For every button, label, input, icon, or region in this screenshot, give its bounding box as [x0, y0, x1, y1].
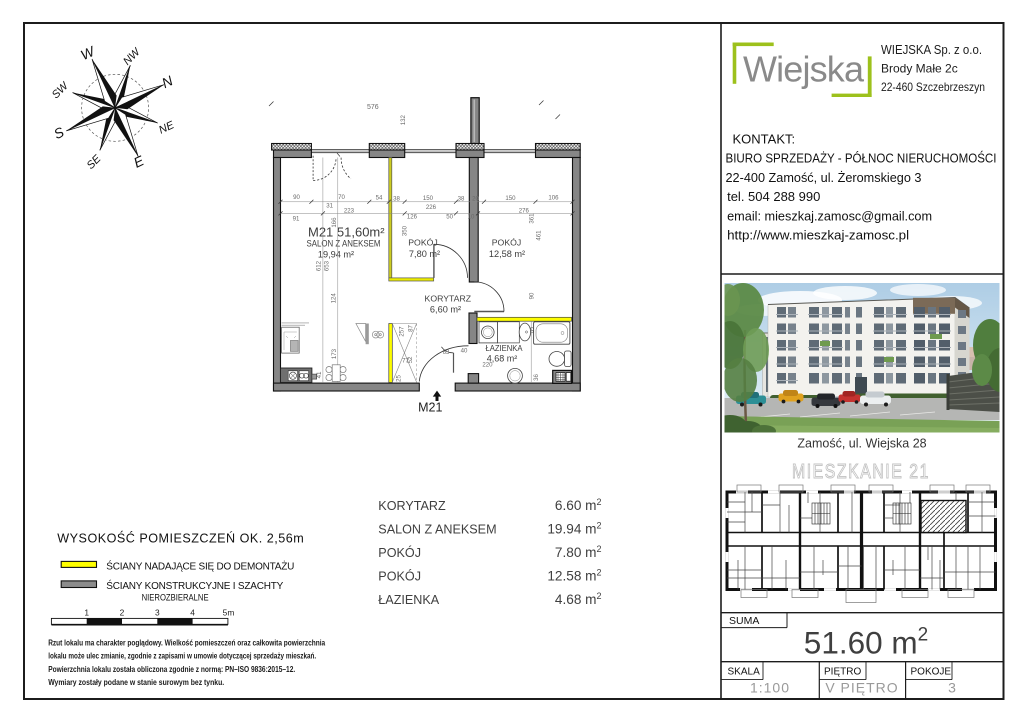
- svg-text:19,94 m²: 19,94 m²: [318, 250, 354, 260]
- svg-text:Brody Małe 2c: Brody Małe 2c: [881, 62, 958, 76]
- svg-text:461: 461: [536, 230, 543, 241]
- svg-text:4: 4: [190, 608, 195, 618]
- svg-text:166: 166: [331, 217, 338, 228]
- svg-text:12,58 m²: 12,58 m²: [489, 249, 525, 259]
- svg-text:54: 54: [376, 195, 383, 202]
- svg-text:ŁAZIENKA: ŁAZIENKA: [378, 593, 439, 607]
- svg-text:36: 36: [533, 374, 540, 381]
- svg-text:150: 150: [505, 195, 516, 202]
- svg-text:63: 63: [443, 349, 450, 356]
- svg-text:38: 38: [393, 196, 400, 203]
- svg-text:90: 90: [529, 292, 536, 299]
- svg-text:Powierzchnia lokalu została ob: Powierzchnia lokalu została obliczona zg…: [48, 664, 295, 674]
- svg-text:361: 361: [529, 213, 536, 224]
- svg-text:POKÓJ: POKÓJ: [492, 238, 521, 248]
- svg-text:NW: NW: [121, 45, 144, 68]
- svg-text:3: 3: [948, 680, 956, 696]
- svg-text:2: 2: [120, 608, 125, 618]
- svg-text:50: 50: [446, 214, 453, 221]
- svg-text:12.58 m2: 12.58 m2: [547, 568, 601, 584]
- svg-text:POKÓJ: POKÓJ: [378, 545, 421, 560]
- svg-text:4.68 m2: 4.68 m2: [555, 591, 602, 607]
- svg-text:SUMA: SUMA: [729, 615, 759, 627]
- svg-text:22-460 Szczebrzeszyn: 22-460 Szczebrzeszyn: [881, 80, 985, 94]
- svg-text:POKOJE: POKOJE: [911, 667, 952, 678]
- svg-text:220: 220: [482, 362, 493, 369]
- svg-text:1:100: 1:100: [750, 680, 790, 696]
- svg-text:31: 31: [326, 203, 333, 210]
- svg-text:E: E: [131, 152, 147, 171]
- svg-text:25: 25: [396, 375, 403, 382]
- svg-text:S: S: [51, 123, 67, 142]
- svg-text:257: 257: [399, 326, 406, 337]
- svg-text:M21 51,60m²: M21 51,60m²: [308, 225, 385, 240]
- svg-text:7,80 m²: 7,80 m²: [409, 249, 440, 259]
- svg-text:653: 653: [324, 260, 331, 271]
- svg-text:19.94 m2: 19.94 m2: [547, 521, 601, 537]
- svg-text:126: 126: [407, 214, 418, 221]
- svg-text:Rzut lokalu ma charakter poglą: Rzut lokalu ma charakter poglądowy. Wiel…: [48, 638, 325, 648]
- svg-text:http://www.mieszkaj-zamosc.pl: http://www.mieszkaj-zamosc.pl: [727, 228, 909, 243]
- svg-text:350: 350: [402, 225, 409, 236]
- svg-text:576: 576: [367, 104, 379, 111]
- svg-text:SALON Z ANEKSEM: SALON Z ANEKSEM: [378, 523, 496, 537]
- svg-text:612: 612: [315, 260, 322, 271]
- svg-text:70: 70: [338, 194, 345, 201]
- svg-text:223: 223: [344, 208, 355, 215]
- svg-text:SW: SW: [50, 79, 72, 101]
- svg-text:KORYTARZ: KORYTARZ: [425, 294, 472, 304]
- svg-text:PIĘTRO: PIĘTRO: [824, 667, 861, 678]
- svg-text:POKÓJ: POKÓJ: [378, 569, 421, 584]
- svg-text:173: 173: [331, 348, 338, 359]
- svg-text:tel. 504 288 990: tel. 504 288 990: [727, 189, 820, 204]
- svg-text:91: 91: [293, 216, 300, 223]
- svg-text:132: 132: [400, 115, 407, 126]
- svg-text:41: 41: [316, 371, 323, 378]
- svg-text:5m: 5m: [223, 608, 235, 618]
- svg-text:10: 10: [468, 214, 475, 221]
- svg-text:1: 1: [84, 608, 89, 618]
- svg-text:BIURO SPRZEDAŻY - PÓŁNOC NIERU: BIURO SPRZEDAŻY - PÓŁNOC NIERUCHOMOŚCI: [726, 151, 997, 166]
- svg-text:6.60 m2: 6.60 m2: [555, 497, 602, 513]
- svg-text:N: N: [159, 72, 176, 91]
- svg-text:V PIĘTRO: V PIĘTRO: [825, 680, 898, 696]
- svg-text:106: 106: [548, 195, 559, 202]
- svg-text:NE: NE: [157, 119, 177, 137]
- svg-text:124: 124: [331, 293, 338, 304]
- svg-text:90: 90: [293, 194, 300, 201]
- svg-text:20: 20: [472, 196, 479, 203]
- svg-text:WYSOKOŚĆ POMIESZCZEŃ OK. 2,56m: WYSOKOŚĆ POMIESZCZEŃ OK. 2,56m: [57, 531, 304, 546]
- svg-text:51.60 m2: 51.60 m2: [804, 625, 928, 661]
- svg-text:W: W: [78, 42, 98, 63]
- svg-text:226: 226: [426, 204, 437, 211]
- svg-text:6,60 m²: 6,60 m²: [430, 305, 461, 315]
- svg-text:MIESZKANIE 21: MIESZKANIE 21: [792, 460, 930, 483]
- svg-text:Wymiary zostały podane w stani: Wymiary zostały podane w stanie surowym …: [48, 677, 224, 687]
- svg-text:lokalu może ulec zmianie, zgod: lokalu może ulec zmianie, zgodnie z zapi…: [48, 651, 316, 661]
- svg-text:38: 38: [458, 196, 465, 203]
- svg-text:22-400 Zamość, ul. Żeromskiego: 22-400 Zamość, ul. Żeromskiego 3: [726, 170, 922, 185]
- svg-text:M21: M21: [418, 401, 442, 415]
- svg-text:ŚCIANY NADAJĄCE SIĘ DO DEMONTA: ŚCIANY NADAJĄCE SIĘ DO DEMONTAŻU: [106, 560, 294, 573]
- svg-text:ŚCIANY KONSTRUKCYJNE I SZACHTY: ŚCIANY KONSTRUKCYJNE I SZACHTY: [106, 579, 283, 592]
- svg-text:SKALA: SKALA: [728, 667, 761, 678]
- svg-text:KORYTARZ: KORYTARZ: [378, 499, 446, 513]
- svg-text:150: 150: [423, 195, 434, 202]
- svg-text:POKÓJ: POKÓJ: [408, 238, 437, 248]
- svg-text:Zamość, ul. Wiejska 28: Zamość, ul. Wiejska 28: [797, 437, 926, 451]
- svg-text:SALON Z ANEKSEM: SALON Z ANEKSEM: [307, 239, 381, 249]
- svg-text:SE: SE: [85, 152, 104, 171]
- svg-text:3: 3: [155, 608, 160, 618]
- svg-text:email: mieszkaj.zamosc@gmail.c: email: mieszkaj.zamosc@gmail.com: [727, 209, 932, 224]
- svg-text:Wiejska: Wiejska: [743, 49, 865, 90]
- svg-text:40: 40: [461, 348, 468, 355]
- svg-text:ŁAZIENKA: ŁAZIENKA: [486, 343, 523, 353]
- svg-text:KONTAKT:: KONTAKT:: [733, 132, 796, 147]
- svg-text:WIEJSKA Sp. z o.o.: WIEJSKA Sp. z o.o.: [881, 43, 982, 57]
- svg-text:NIEROZBIERALNE: NIEROZBIERALNE: [142, 593, 209, 603]
- svg-text:7.80 m2: 7.80 m2: [555, 544, 602, 560]
